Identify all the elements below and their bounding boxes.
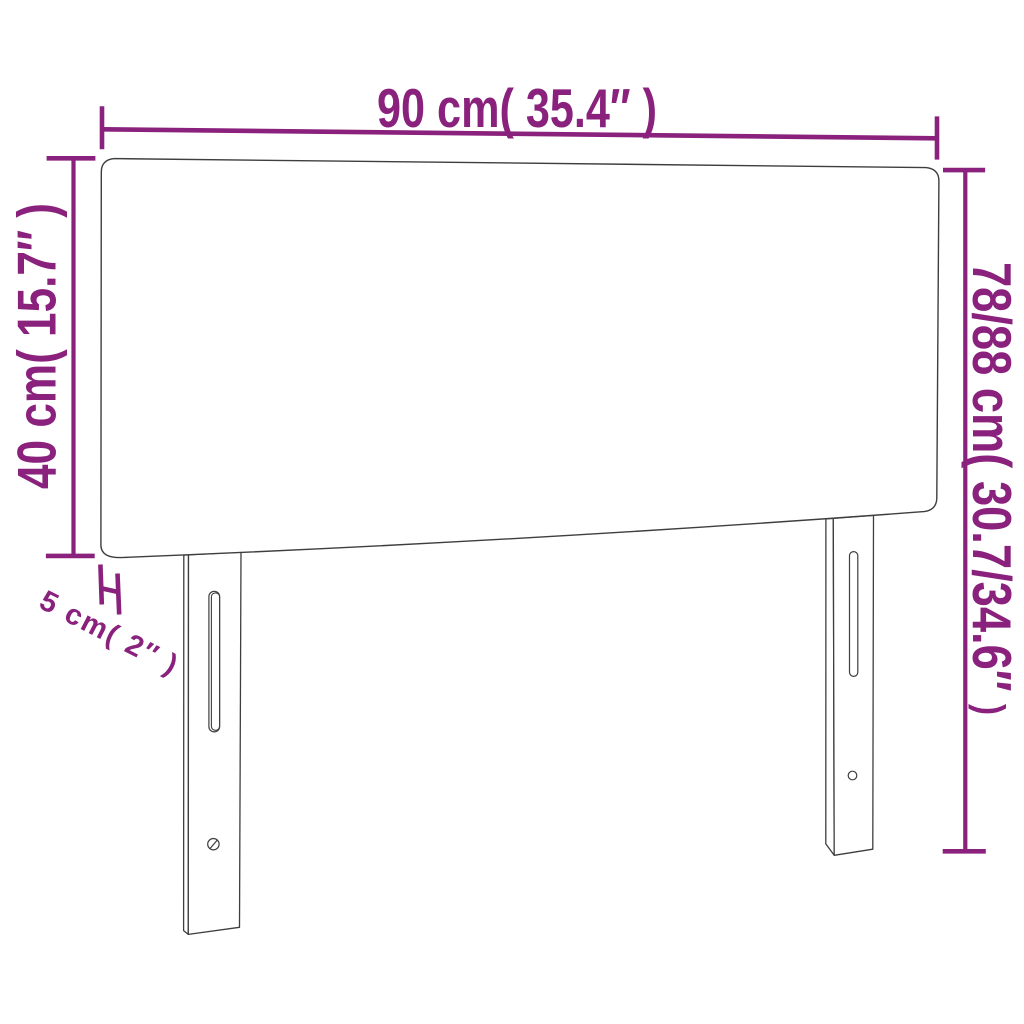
svg-text:40 cm( 15.7″ ): 40 cm( 15.7″ )	[6, 203, 68, 489]
svg-text:78/88 cm( 30.7/34.6″ ): 78/88 cm( 30.7/34.6″ )	[961, 262, 1023, 715]
svg-text:90 cm( 35.4″ ): 90 cm( 35.4″ )	[377, 77, 657, 139]
